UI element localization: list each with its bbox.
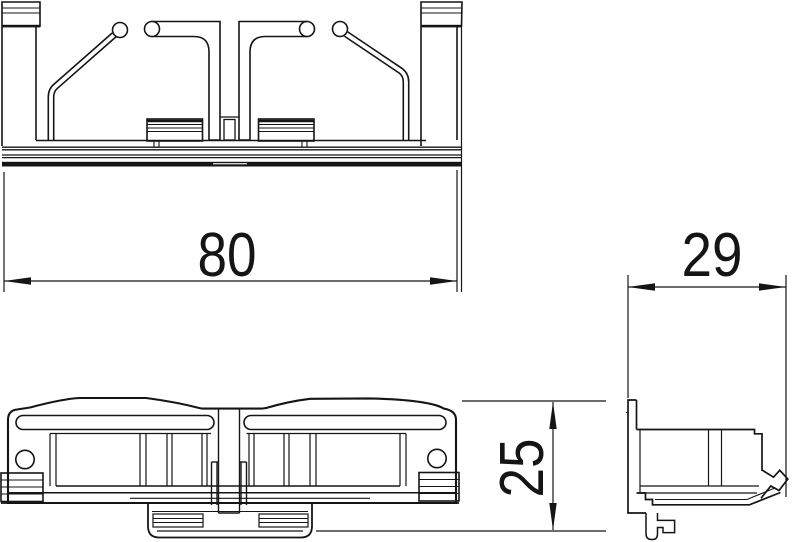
technical-drawing: 80 [0, 0, 794, 542]
dimension-value-80: 80 [198, 221, 257, 290]
dimension-value-29: 29 [682, 221, 743, 290]
wire-ball-end [113, 23, 128, 38]
paper-background [0, 0, 794, 542]
dimension-value-25: 25 [488, 439, 557, 498]
drawing-sheet: 80 [0, 0, 794, 542]
arm-ball-end [300, 22, 315, 37]
wire-ball-end [333, 22, 348, 37]
arm-ball-end [145, 22, 160, 37]
